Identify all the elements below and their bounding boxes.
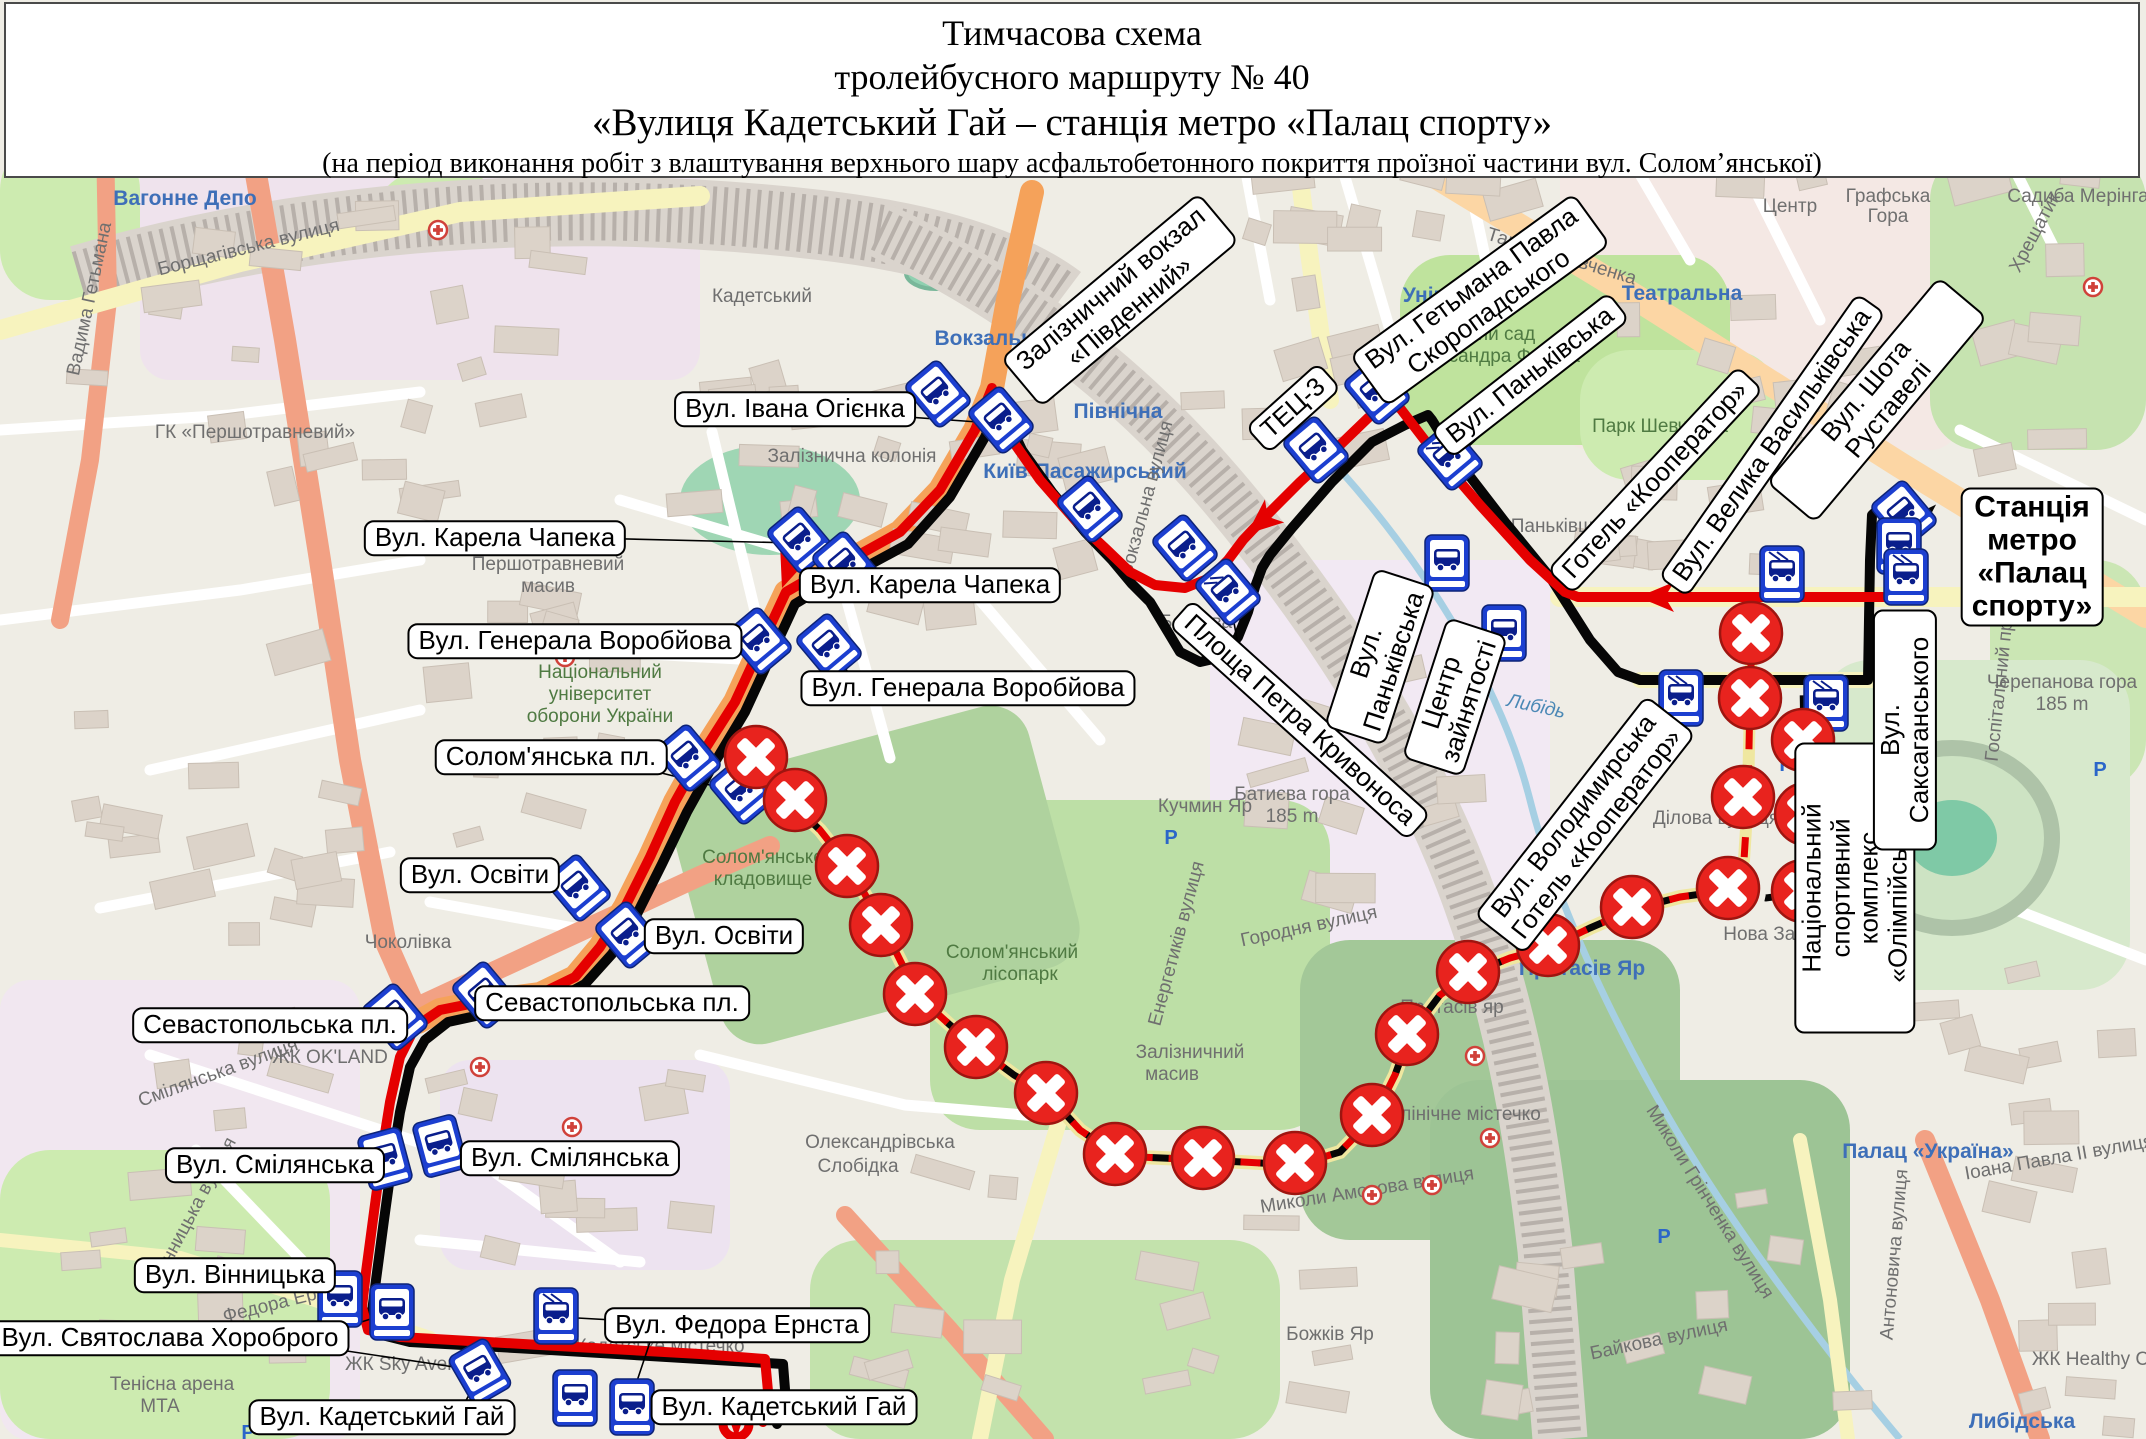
closed-stop-icon bbox=[816, 835, 878, 897]
closed-stop-icon bbox=[884, 963, 946, 1025]
building bbox=[362, 459, 406, 480]
building bbox=[1767, 1236, 1804, 1265]
street-name-label: Солом'янський bbox=[946, 942, 1078, 963]
street-name-label: Кучмин Яр bbox=[1158, 796, 1252, 817]
title-panel: Тимчасова схема тролейбусного маршруту №… bbox=[4, 2, 2140, 178]
hospital-icon bbox=[563, 1118, 581, 1136]
street-name-label: ЖК Healthy City bbox=[2032, 1349, 2146, 1370]
building bbox=[1181, 391, 1225, 410]
street-name-label: Олександрівська bbox=[805, 1132, 955, 1153]
building bbox=[232, 346, 260, 362]
building bbox=[2102, 1416, 2134, 1438]
bus-stop-icon bbox=[370, 1284, 414, 1340]
parking-icon: P bbox=[2093, 759, 2106, 781]
building bbox=[325, 827, 364, 854]
building bbox=[72, 796, 103, 822]
street-name-label: Солом'янське bbox=[702, 847, 824, 868]
bus-stop-icon bbox=[610, 1379, 654, 1435]
building bbox=[214, 1108, 247, 1131]
closed-stop-icon bbox=[1341, 1084, 1403, 1146]
map-canvas: Вагонне ДепоБорщагівська вулицяВадима Ге… bbox=[0, 0, 2146, 1439]
closed-stop-icon bbox=[850, 894, 912, 956]
street-name-label: Кадетський bbox=[712, 286, 812, 307]
street-name-label: МТА bbox=[140, 1396, 180, 1417]
building bbox=[1244, 1215, 1300, 1230]
route-label: Солом'янська пл. bbox=[435, 739, 668, 775]
route-label: Вул. Смілянська bbox=[165, 1147, 385, 1183]
bus-stop-icon bbox=[553, 1370, 597, 1426]
route-label: Севастопольська пл. bbox=[132, 1007, 408, 1043]
street-name-label: масив bbox=[1145, 1064, 1199, 1085]
route-label: Вул. Саксаганського bbox=[1873, 610, 1937, 851]
street-name-label: Залізничний bbox=[1136, 1042, 1245, 1063]
trolleybus-stop-icon bbox=[534, 1288, 578, 1344]
street-name-label: 185 m bbox=[1266, 806, 1319, 827]
building bbox=[229, 923, 260, 946]
closed-stop-icon bbox=[1264, 1132, 1326, 1194]
route-label: Станція метро «Палац спорту» bbox=[1961, 488, 2104, 627]
route-label: Вул. Генерала Воробйова bbox=[800, 670, 1135, 706]
building bbox=[2028, 312, 2081, 346]
hospital-icon bbox=[1466, 1047, 1484, 1065]
street-name-label: Театральна bbox=[1622, 282, 1743, 305]
closed-stop-icon bbox=[1719, 667, 1781, 729]
svg-text:P: P bbox=[2093, 759, 2106, 781]
closed-stop-icon bbox=[1697, 857, 1759, 919]
hospital-icon bbox=[429, 221, 447, 239]
building bbox=[876, 1251, 899, 1274]
hospital-icon bbox=[1423, 1176, 1441, 1194]
building bbox=[2097, 1029, 2136, 1058]
route-map-scheme: Вагонне ДепоБорщагівська вулицяВадима Ге… bbox=[0, 0, 2146, 1439]
street-name-label: Гора bbox=[1868, 206, 1909, 227]
street-name-label: Вагонне Депо bbox=[113, 187, 256, 210]
route-label: Вул. Івана Огієнка bbox=[674, 391, 916, 427]
building bbox=[2072, 1248, 2110, 1288]
trolleybus-stop-icon bbox=[1884, 549, 1928, 605]
building bbox=[666, 490, 723, 517]
street-name-label: Либідська bbox=[1969, 1410, 2076, 1433]
building bbox=[2046, 243, 2085, 276]
closed-stop-icon bbox=[1015, 1062, 1077, 1124]
building bbox=[2065, 1377, 2116, 1399]
building bbox=[1412, 211, 1444, 242]
street-name-label: Центр bbox=[1763, 196, 1817, 217]
route-label: Вул. Освіти bbox=[644, 918, 804, 954]
street-name-label: масив bbox=[521, 576, 575, 597]
trolleybus-stop-icon bbox=[1760, 546, 1804, 602]
route-label: Вул. Смілянська bbox=[460, 1140, 680, 1176]
parking-icon: P bbox=[1164, 827, 1177, 849]
building bbox=[988, 1175, 1018, 1199]
street-name-label: університет bbox=[549, 684, 652, 705]
street-name-label: Слобідка bbox=[817, 1156, 899, 1177]
route-label: Вул. Кадетський Гай bbox=[249, 1399, 516, 1435]
building bbox=[2048, 1303, 2095, 1325]
building bbox=[2024, 1111, 2079, 1145]
building bbox=[195, 1226, 245, 1254]
building bbox=[423, 663, 472, 703]
street-name-label: Залізнична колонія bbox=[768, 446, 937, 467]
building bbox=[1292, 275, 1320, 311]
route-label: Вул. Вінницька bbox=[134, 1257, 336, 1293]
closed-stop-icon bbox=[1084, 1123, 1146, 1185]
title-line-1: Тимчасова схема bbox=[6, 12, 2138, 54]
closed-stop-icon bbox=[1376, 1003, 1438, 1065]
building bbox=[1481, 1380, 1523, 1420]
street-name-label: 185 m bbox=[2036, 694, 2089, 715]
title-line-4: (на період виконання робіт з влаштування… bbox=[6, 148, 2138, 180]
parking-icon: P bbox=[1657, 1226, 1670, 1248]
route-label: Вул. Карела Чапека bbox=[799, 567, 1061, 603]
building bbox=[74, 710, 108, 728]
route-label: Вул. Карела Чапека bbox=[364, 520, 626, 556]
hospital-icon bbox=[471, 1058, 489, 1076]
street-name-label: лісопарк bbox=[982, 964, 1058, 985]
street-name-label: Графська bbox=[1846, 186, 1931, 207]
street-name-label: оборони України bbox=[527, 706, 674, 727]
building bbox=[61, 1250, 101, 1271]
building bbox=[668, 1201, 715, 1233]
svg-text:P: P bbox=[1657, 1226, 1670, 1248]
building bbox=[1328, 227, 1382, 251]
building bbox=[2028, 429, 2087, 450]
building bbox=[1833, 1391, 1873, 1411]
closed-stop-icon bbox=[764, 769, 826, 831]
building bbox=[964, 1320, 1022, 1354]
street-name-label: ГК «Першотравневий» bbox=[155, 422, 355, 443]
closed-stop-icon bbox=[1601, 876, 1663, 938]
street-name-label: Першотравневий bbox=[472, 554, 625, 575]
route-label: Вул. Генерала Воробйова bbox=[407, 623, 742, 659]
building bbox=[494, 326, 559, 355]
building bbox=[188, 762, 239, 789]
bus-stop-icon bbox=[1425, 535, 1469, 591]
street-name-label: Садиба Мерінга bbox=[2007, 186, 2146, 207]
closed-stop-icon bbox=[945, 1016, 1007, 1078]
building bbox=[891, 1304, 944, 1338]
closed-stop-icon bbox=[1437, 941, 1499, 1003]
building bbox=[1003, 511, 1057, 539]
building bbox=[1299, 1267, 1357, 1289]
title-line-2: тролейбусного маршруту № 40 bbox=[6, 56, 2138, 98]
title-line-3: «Вулиця Кадетський Гай – станція метро «… bbox=[6, 100, 2138, 145]
building bbox=[1316, 873, 1376, 903]
street-name-label: кладовище bbox=[714, 869, 813, 890]
hospital-icon bbox=[2084, 278, 2102, 296]
street-name-label: Клінічне містечко bbox=[1389, 1104, 1541, 1125]
svg-text:P: P bbox=[1164, 827, 1177, 849]
closed-stop-icon bbox=[1720, 602, 1782, 664]
closed-stop-icon bbox=[1712, 766, 1774, 828]
street-name-label: Північна bbox=[1074, 400, 1163, 423]
building bbox=[431, 285, 469, 324]
route-label: Вул. Кадетський Гай bbox=[651, 1389, 918, 1425]
hospital-icon bbox=[1363, 1186, 1381, 1204]
street-name-label: Тенісна арена bbox=[110, 1374, 235, 1395]
street-name-label: Чоколівка bbox=[365, 932, 452, 953]
street-name-label: Національний bbox=[538, 662, 662, 683]
building bbox=[1495, 1332, 1520, 1364]
street-name-label: Божків Яр bbox=[1286, 1324, 1374, 1345]
closed-stop-icon bbox=[1172, 1127, 1234, 1189]
building bbox=[1436, 774, 1486, 804]
route-label: Севастопольська пл. bbox=[474, 985, 750, 1021]
route-label: Вул. Федора Ернста bbox=[604, 1307, 870, 1343]
route-label: Вул. Святослава Хороброго bbox=[0, 1320, 350, 1356]
hospital-icon bbox=[1481, 1129, 1499, 1147]
route-label: Вул. Освіти bbox=[400, 857, 560, 893]
